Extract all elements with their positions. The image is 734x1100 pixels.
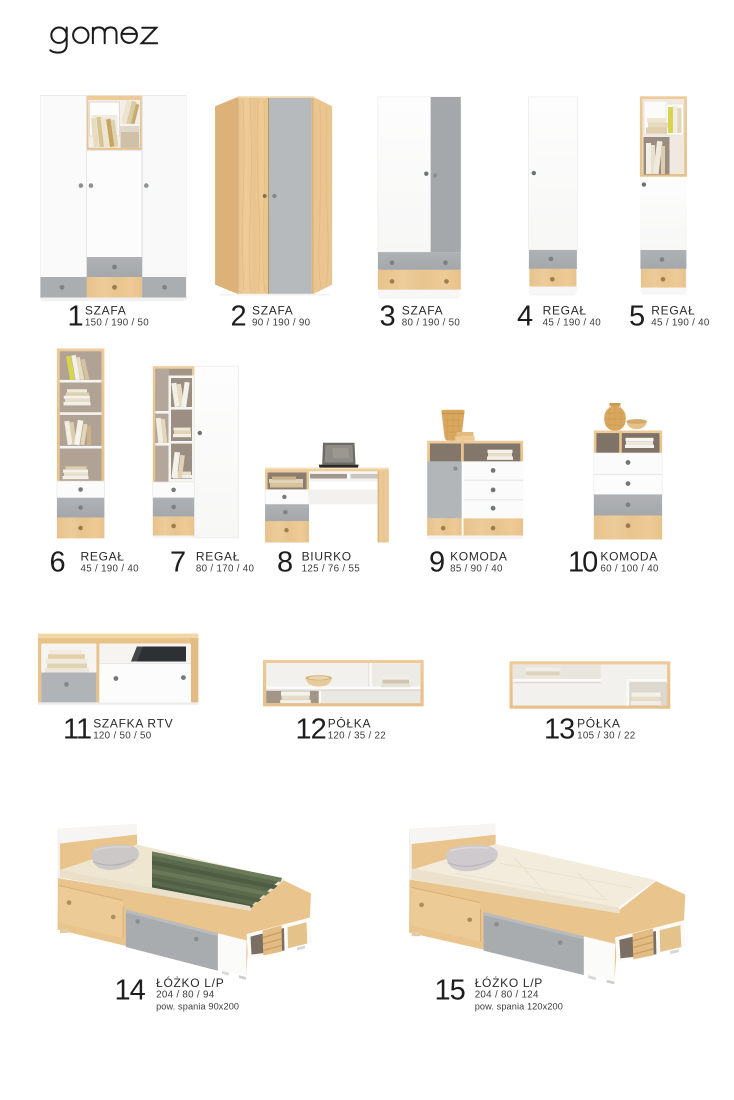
svg-text:150 / 190 / 50: 150 / 190 / 50: [85, 318, 149, 329]
svg-text:11: 11: [63, 714, 91, 746]
svg-text:15: 15: [435, 975, 465, 1007]
svg-text:45 / 190 / 40: 45 / 190 / 40: [651, 318, 710, 329]
svg-text:BIURKO: BIURKO: [302, 550, 352, 564]
svg-text:45 / 190 / 40: 45 / 190 / 40: [543, 318, 602, 329]
svg-text:5: 5: [629, 301, 644, 333]
svg-text:KOMODA: KOMODA: [450, 550, 508, 564]
svg-text:90 / 190 / 90: 90 / 190 / 90: [252, 318, 311, 329]
svg-text:120 / 50 / 50: 120 / 50 / 50: [93, 731, 152, 742]
svg-text:KOMODA: KOMODA: [600, 550, 658, 564]
svg-text:REGAŁ: REGAŁ: [651, 304, 695, 318]
svg-text:12: 12: [296, 714, 326, 746]
svg-text:PÓŁKA: PÓŁKA: [577, 716, 621, 731]
svg-text:125 / 76 / 55: 125 / 76 / 55: [302, 564, 361, 575]
svg-text:REGAŁ: REGAŁ: [543, 304, 587, 318]
svg-text:60 / 100 / 40: 60 / 100 / 40: [600, 564, 659, 575]
svg-text:105 / 30 / 22: 105 / 30 / 22: [577, 731, 635, 742]
svg-text:80 / 190 / 50: 80 / 190 / 50: [402, 318, 461, 329]
svg-text:ŁÓŻKO L/P: ŁÓŻKO L/P: [475, 975, 543, 990]
svg-text:6: 6: [50, 547, 65, 579]
svg-text:2: 2: [231, 301, 246, 333]
svg-text:ŁÓŻKO L/P: ŁÓŻKO L/P: [156, 975, 224, 990]
svg-text:3: 3: [380, 301, 395, 333]
svg-text:10: 10: [568, 547, 597, 579]
svg-text:REGAŁ: REGAŁ: [81, 550, 125, 564]
svg-text:13: 13: [544, 714, 574, 746]
svg-text:REGAŁ: REGAŁ: [196, 550, 240, 564]
svg-text:SZAFA: SZAFA: [85, 304, 127, 318]
svg-text:7: 7: [170, 547, 185, 579]
svg-text:SZAFKA RTV: SZAFKA RTV: [93, 717, 173, 731]
svg-text:SZAFA: SZAFA: [402, 304, 444, 318]
svg-text:204 / 80 / 124: 204 / 80 / 124: [475, 990, 539, 1001]
svg-text:120 / 35 / 22: 120 / 35 / 22: [328, 731, 386, 742]
svg-text:SZAFA: SZAFA: [252, 304, 294, 318]
svg-text:85 / 90 / 40: 85 / 90 / 40: [450, 564, 503, 575]
svg-text:1: 1: [68, 301, 83, 333]
svg-text:pow. spania 120x200: pow. spania 120x200: [475, 1002, 563, 1012]
svg-text:9: 9: [429, 547, 444, 579]
svg-text:80 / 170 / 40: 80 / 170 / 40: [196, 564, 255, 575]
svg-text:204 / 80 / 94: 204 / 80 / 94: [156, 990, 215, 1001]
svg-text:pow. spania 90x200: pow. spania 90x200: [156, 1002, 239, 1012]
svg-text:4: 4: [517, 301, 533, 333]
svg-text:45 / 190 / 40: 45 / 190 / 40: [81, 564, 140, 575]
svg-text:8: 8: [277, 547, 292, 579]
svg-text:14: 14: [115, 975, 146, 1007]
svg-text:PÓŁKA: PÓŁKA: [328, 716, 372, 731]
